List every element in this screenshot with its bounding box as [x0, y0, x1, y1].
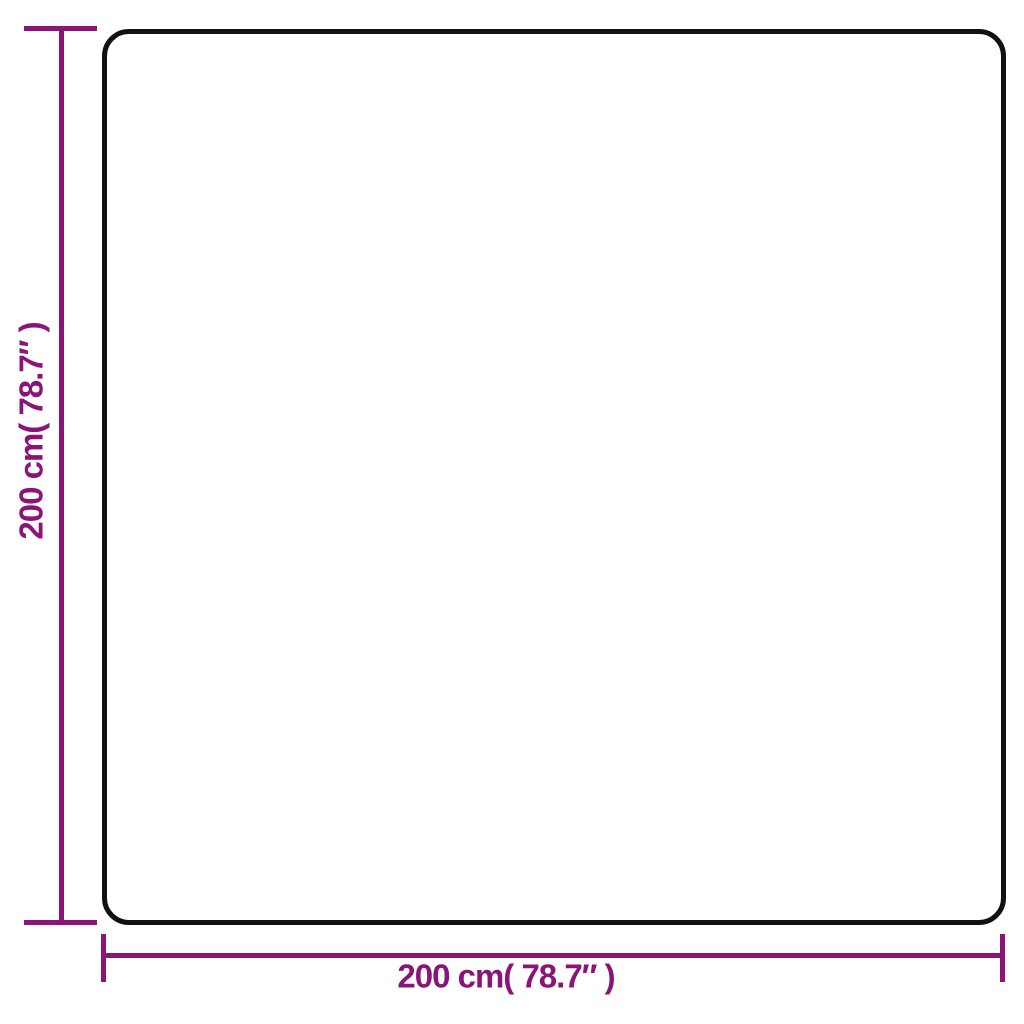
height-dimension-line — [59, 28, 64, 924]
width-dimension-left-cap — [101, 934, 106, 982]
height-dimension-bottom-cap — [24, 920, 97, 925]
width-dimension-right-cap — [1000, 934, 1005, 982]
height-dimension-top-cap — [24, 26, 97, 31]
product-outline — [102, 29, 1006, 925]
height-dimension-label: 200 cm( 78.7″ ) — [15, 322, 48, 539]
width-dimension-label: 200 cm( 78.7″ ) — [397, 960, 614, 993]
product-dimension-diagram: 200 cm( 78.7″ ) 200 cm( 78.7″ ) — [0, 0, 1024, 1024]
